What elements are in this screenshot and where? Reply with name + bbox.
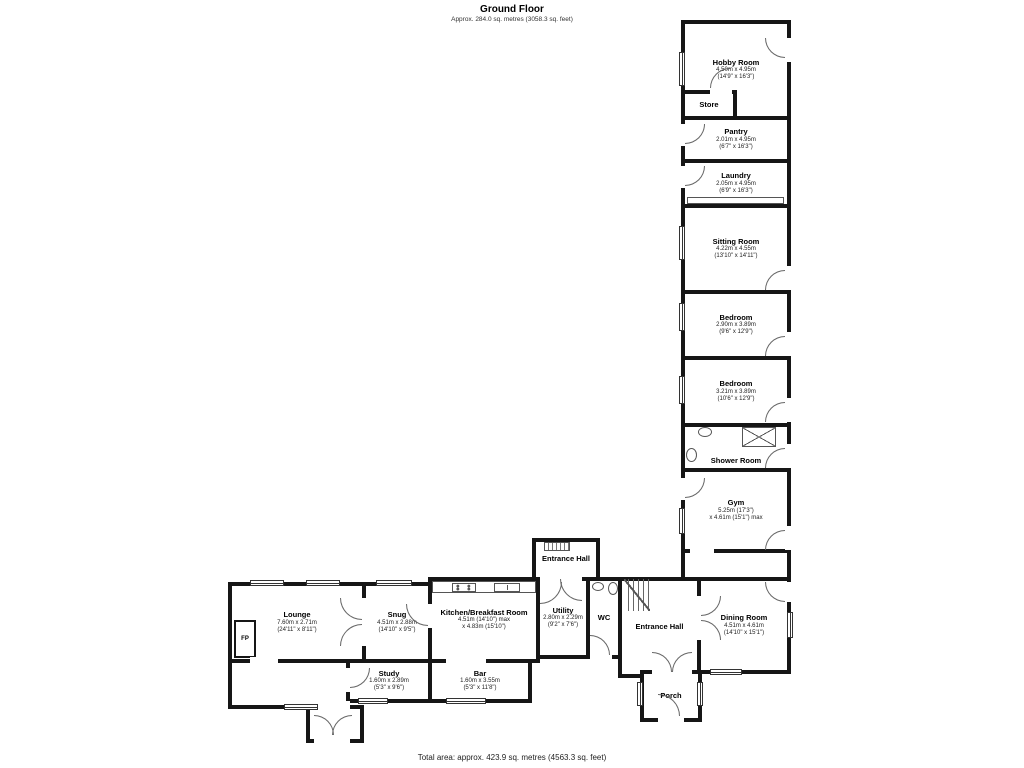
window [446, 698, 486, 704]
sink-icon [592, 582, 604, 591]
door-opening [785, 266, 793, 290]
door-opening [314, 701, 350, 711]
room-dims: 2.80m x 2.29m [543, 615, 583, 622]
door-opening [785, 526, 793, 550]
window [679, 52, 685, 86]
room-name: Bedroom [720, 380, 753, 389]
room-name: Entrance Hall [542, 555, 590, 564]
room-dims: (5'3" x 9'6") [374, 685, 404, 692]
sink-icon [698, 427, 712, 437]
door-opening [785, 332, 793, 356]
room-dims: (6'9" x 16'3") [719, 188, 753, 195]
door-opening [446, 657, 486, 667]
window [679, 508, 685, 534]
room-name: Entrance Hall [636, 623, 684, 632]
fireplace: FP [234, 620, 256, 658]
window [637, 682, 643, 706]
room-name: Bedroom [720, 314, 753, 323]
window [250, 580, 284, 586]
window [679, 376, 685, 404]
room-dims: 4.51m x 4.61m [724, 623, 764, 630]
room-name: Study [379, 670, 400, 679]
room-dims: (6'7" x 16'3") [719, 144, 753, 151]
window [787, 612, 793, 638]
room-name: Snug [388, 611, 407, 620]
kitchen-sink-icon [494, 583, 520, 592]
room-dims: 4.22m x 4.55m [716, 246, 756, 253]
plan-title: Ground Floor [0, 4, 1024, 15]
door-opening [785, 398, 793, 422]
room-name: Shower Room [711, 457, 761, 466]
window [358, 698, 388, 704]
stove-icon [452, 583, 476, 592]
room-name: Dining Room [721, 614, 768, 623]
plan-subtitle: Approx. 284.0 sq. metres (3058.3 sq. fee… [0, 16, 1024, 23]
window [710, 669, 742, 675]
room-name: Lounge [283, 611, 310, 620]
window [697, 682, 703, 706]
room-dims: x 4.83m (15'10") [462, 624, 506, 631]
room-name: Bar [474, 670, 487, 679]
room-dims: 3.21m x 3.89m [716, 389, 756, 396]
door-opening [250, 657, 278, 667]
room-dims: (9'2" x 7'6") [548, 622, 578, 629]
room-dims: 7.60m x 2.71m [277, 620, 317, 627]
room-dims: 4.51m (14'10") max [458, 617, 510, 624]
room-name: Utility [553, 607, 574, 616]
room-dims: (14'10" x 9'5") [379, 627, 416, 634]
room-dims: (9'6" x 12'9") [719, 329, 753, 336]
room-dims: 1.60m x 3.55m [460, 678, 500, 685]
door-opening [314, 737, 350, 747]
room-name: WC [598, 614, 611, 623]
window [376, 580, 412, 586]
window [306, 580, 340, 586]
room-name: Store [699, 101, 718, 110]
room-dims: (10'6" x 12'9") [718, 396, 755, 403]
room-name: Laundry [721, 172, 751, 181]
door-opening [710, 88, 732, 96]
room-dims: (5'3" x 11'8") [463, 685, 496, 692]
room-dims: x 4.61m (15'1") max [709, 515, 762, 522]
room-dims: (24'11" x 8'11") [277, 627, 316, 634]
kitchen-counter [432, 581, 536, 593]
room-name: Hobby Room [713, 59, 760, 68]
total-area-text: Total area: approx. 423.9 sq. metres (45… [0, 753, 1024, 762]
shower-icon [742, 427, 776, 447]
fireplace-label: FP [241, 636, 249, 642]
floor-plan-page: Ground Floor Approx. 284.0 sq. metres (3… [0, 0, 1024, 768]
window [284, 704, 318, 710]
window [679, 226, 685, 260]
room-dims: 1.60m x 2.89m [369, 678, 409, 685]
laundry-counter [687, 197, 784, 204]
window [679, 303, 685, 331]
room-dims: (13'10" x 14'11") [714, 253, 757, 260]
room-dims: 2.05m x 4.95m [716, 181, 756, 188]
toilet-icon [686, 448, 697, 462]
room-dims: (14'10" x 15'1") [724, 630, 764, 637]
room-dims: 5.25m (17'3") [718, 508, 754, 515]
room-name: Gym [728, 499, 745, 508]
plan-header: Ground Floor Approx. 284.0 sq. metres (3… [0, 4, 1024, 23]
door-opening [785, 38, 793, 62]
room-dims: 2.90m x 3.89m [716, 322, 756, 329]
room-name: Kitchen/Breakfast Room [440, 609, 527, 618]
room-dims: 4.51m x 2.88m [377, 620, 417, 627]
door-opening [658, 715, 684, 723]
door-opening [785, 444, 793, 468]
room-name: Sitting Room [713, 238, 760, 247]
room-dims: 2.01m x 4.95m [716, 137, 756, 144]
staircase [624, 579, 650, 611]
door-opening [690, 549, 714, 557]
toilet-icon [608, 582, 618, 595]
door-opening [785, 582, 793, 602]
radiator-icon [544, 542, 570, 551]
room-name: Pantry [724, 128, 747, 137]
